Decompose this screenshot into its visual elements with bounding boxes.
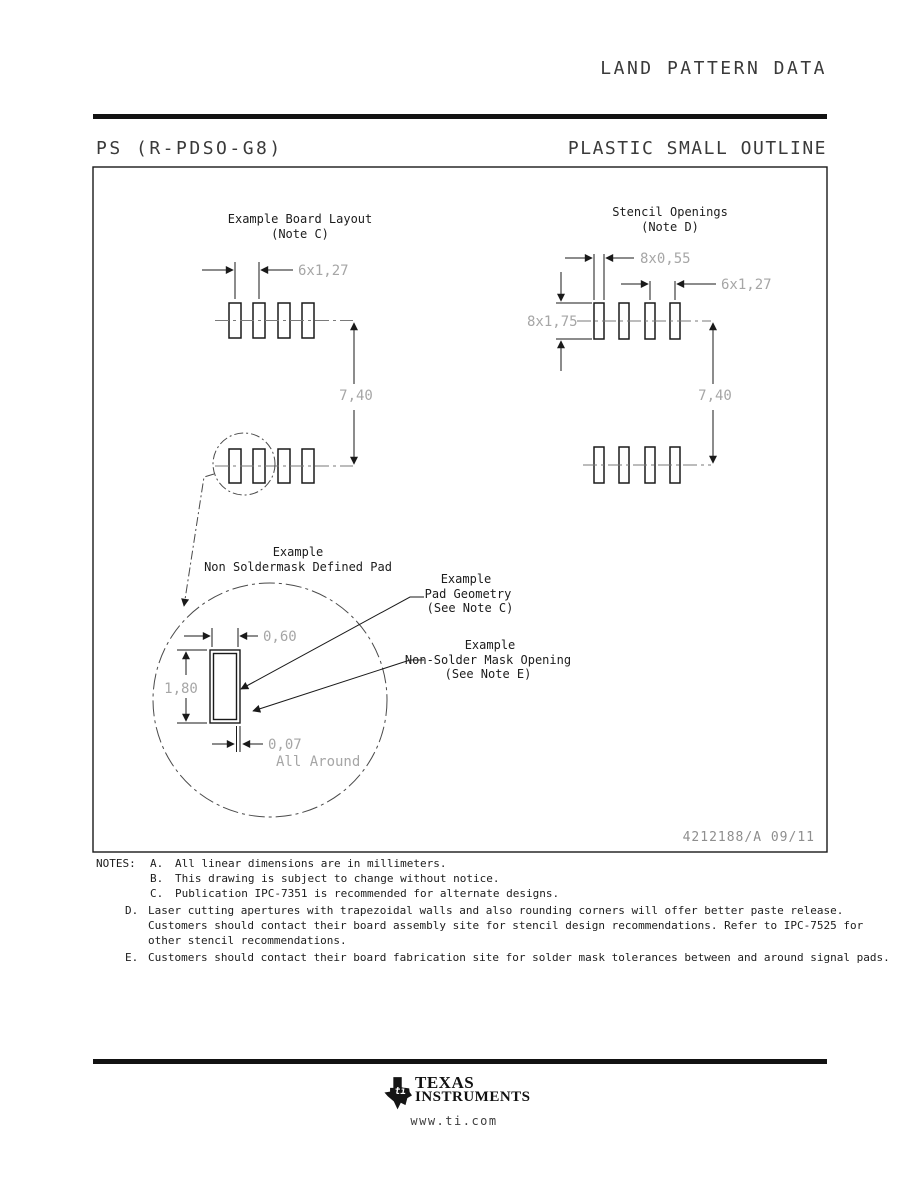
stencil-height-value: 8x1,75 — [527, 314, 578, 330]
stencil-title: Stencil Openings — [612, 205, 728, 219]
stencil-pitch-dimension — [621, 281, 716, 300]
note-text: Laser cutting apertures with trapezoidal… — [148, 904, 863, 947]
note-item: B. This drawing is subject to change wit… — [0, 871, 918, 886]
detail-clearance-note: All Around — [276, 754, 360, 770]
stencil-figure: Stencil Openings (Note D) — [527, 205, 772, 483]
note-item: C. Publication IPC-7351 is recommended f… — [0, 886, 918, 901]
board-layout-title: Example Board Layout — [228, 212, 373, 226]
svg-text:ti: ti — [395, 1086, 406, 1097]
land-pattern-drawing: Example Board Layout (Note C) — [0, 0, 918, 1188]
stencil-pitch-value: 6x1,27 — [721, 277, 772, 293]
pad-geometry-label-line2: Pad Geometry — [425, 587, 512, 601]
note-letter: C. — [150, 886, 163, 901]
stencil-subtitle: (Note D) — [641, 220, 699, 234]
pad-geometry-label-line1: Example — [441, 572, 492, 586]
stencil-width-value: 8x0,55 — [640, 251, 691, 267]
detail-width-dimension — [184, 628, 258, 647]
note-item: E. Customers should contact their board … — [0, 950, 918, 965]
solder-mask-opening-outline — [210, 650, 240, 723]
notes-section: NOTES: A. All linear dimensions are in m… — [0, 853, 918, 965]
centerlines — [577, 321, 711, 465]
ti-logo: ti TEXAS INSTRUMENTS — [384, 1076, 531, 1110]
mask-opening-leader — [253, 660, 424, 711]
note-item: D. Laser cutting apertures with trapezoi… — [0, 903, 918, 948]
brand-name-line1: TEXAS — [415, 1076, 531, 1090]
detail-title-line1: Example — [273, 545, 324, 559]
centerlines — [215, 321, 353, 467]
detail-magnified-circle — [153, 583, 387, 817]
texas-icon: ti — [384, 1076, 412, 1110]
note-text: This drawing is subject to change withou… — [175, 872, 500, 885]
stencil-width-dimension — [565, 254, 634, 300]
note-item: A. All linear dimensions are in millimet… — [0, 853, 918, 871]
detail-width-value: 0,60 — [263, 629, 297, 645]
detail-height-value: 1,80 — [164, 681, 198, 697]
pad-geometry-label-line3: (See Note C) — [427, 601, 514, 615]
board-row-spacing-value: 7,40 — [339, 388, 373, 404]
note-letter: E. — [125, 950, 138, 965]
bottom-rule — [93, 1059, 827, 1064]
detail-clearance-value: 0,07 — [268, 737, 302, 753]
ti-logo-text: TEXAS INSTRUMENTS — [415, 1076, 531, 1105]
detail-callout-figure: Example Non Soldermask Defined Pad 0,60 — [153, 433, 571, 817]
note-letter: B. — [150, 871, 163, 886]
brand-name-line2: INSTRUMENTS — [415, 1090, 531, 1105]
mask-opening-label-line2: Non-Solder Mask Opening — [405, 653, 571, 667]
detail-leader-line — [184, 474, 214, 606]
note-text: Publication IPC-7351 is recommended for … — [175, 887, 559, 900]
detail-clearance-dimension — [212, 726, 263, 752]
note-text: Customers should contact their board fab… — [148, 951, 890, 964]
board-pitch-value: 6x1,27 — [298, 263, 349, 279]
note-letter: D. — [125, 903, 138, 918]
note-text: All linear dimensions are in millimeters… — [175, 857, 447, 870]
detail-title-line2: Non Soldermask Defined Pad — [204, 560, 392, 574]
note-letter: A. — [150, 856, 163, 871]
board-pitch-dimension — [202, 262, 293, 299]
mask-opening-label-line1: Example — [465, 638, 516, 652]
board-layout-subtitle: (Note C) — [271, 227, 329, 241]
mask-opening-label-line3: (See Note E) — [445, 667, 532, 681]
website-url: www.ti.com — [384, 1114, 524, 1128]
doc-number: 4212188/A 09/11 — [683, 830, 815, 845]
stencil-row-spacing-value: 7,40 — [698, 388, 732, 404]
datasheet-page: LAND PATTERN DATA PS (R-PDSO-G8) PLASTIC… — [0, 0, 918, 1188]
board-layout-figure: Example Board Layout (Note C) — [202, 212, 373, 483]
